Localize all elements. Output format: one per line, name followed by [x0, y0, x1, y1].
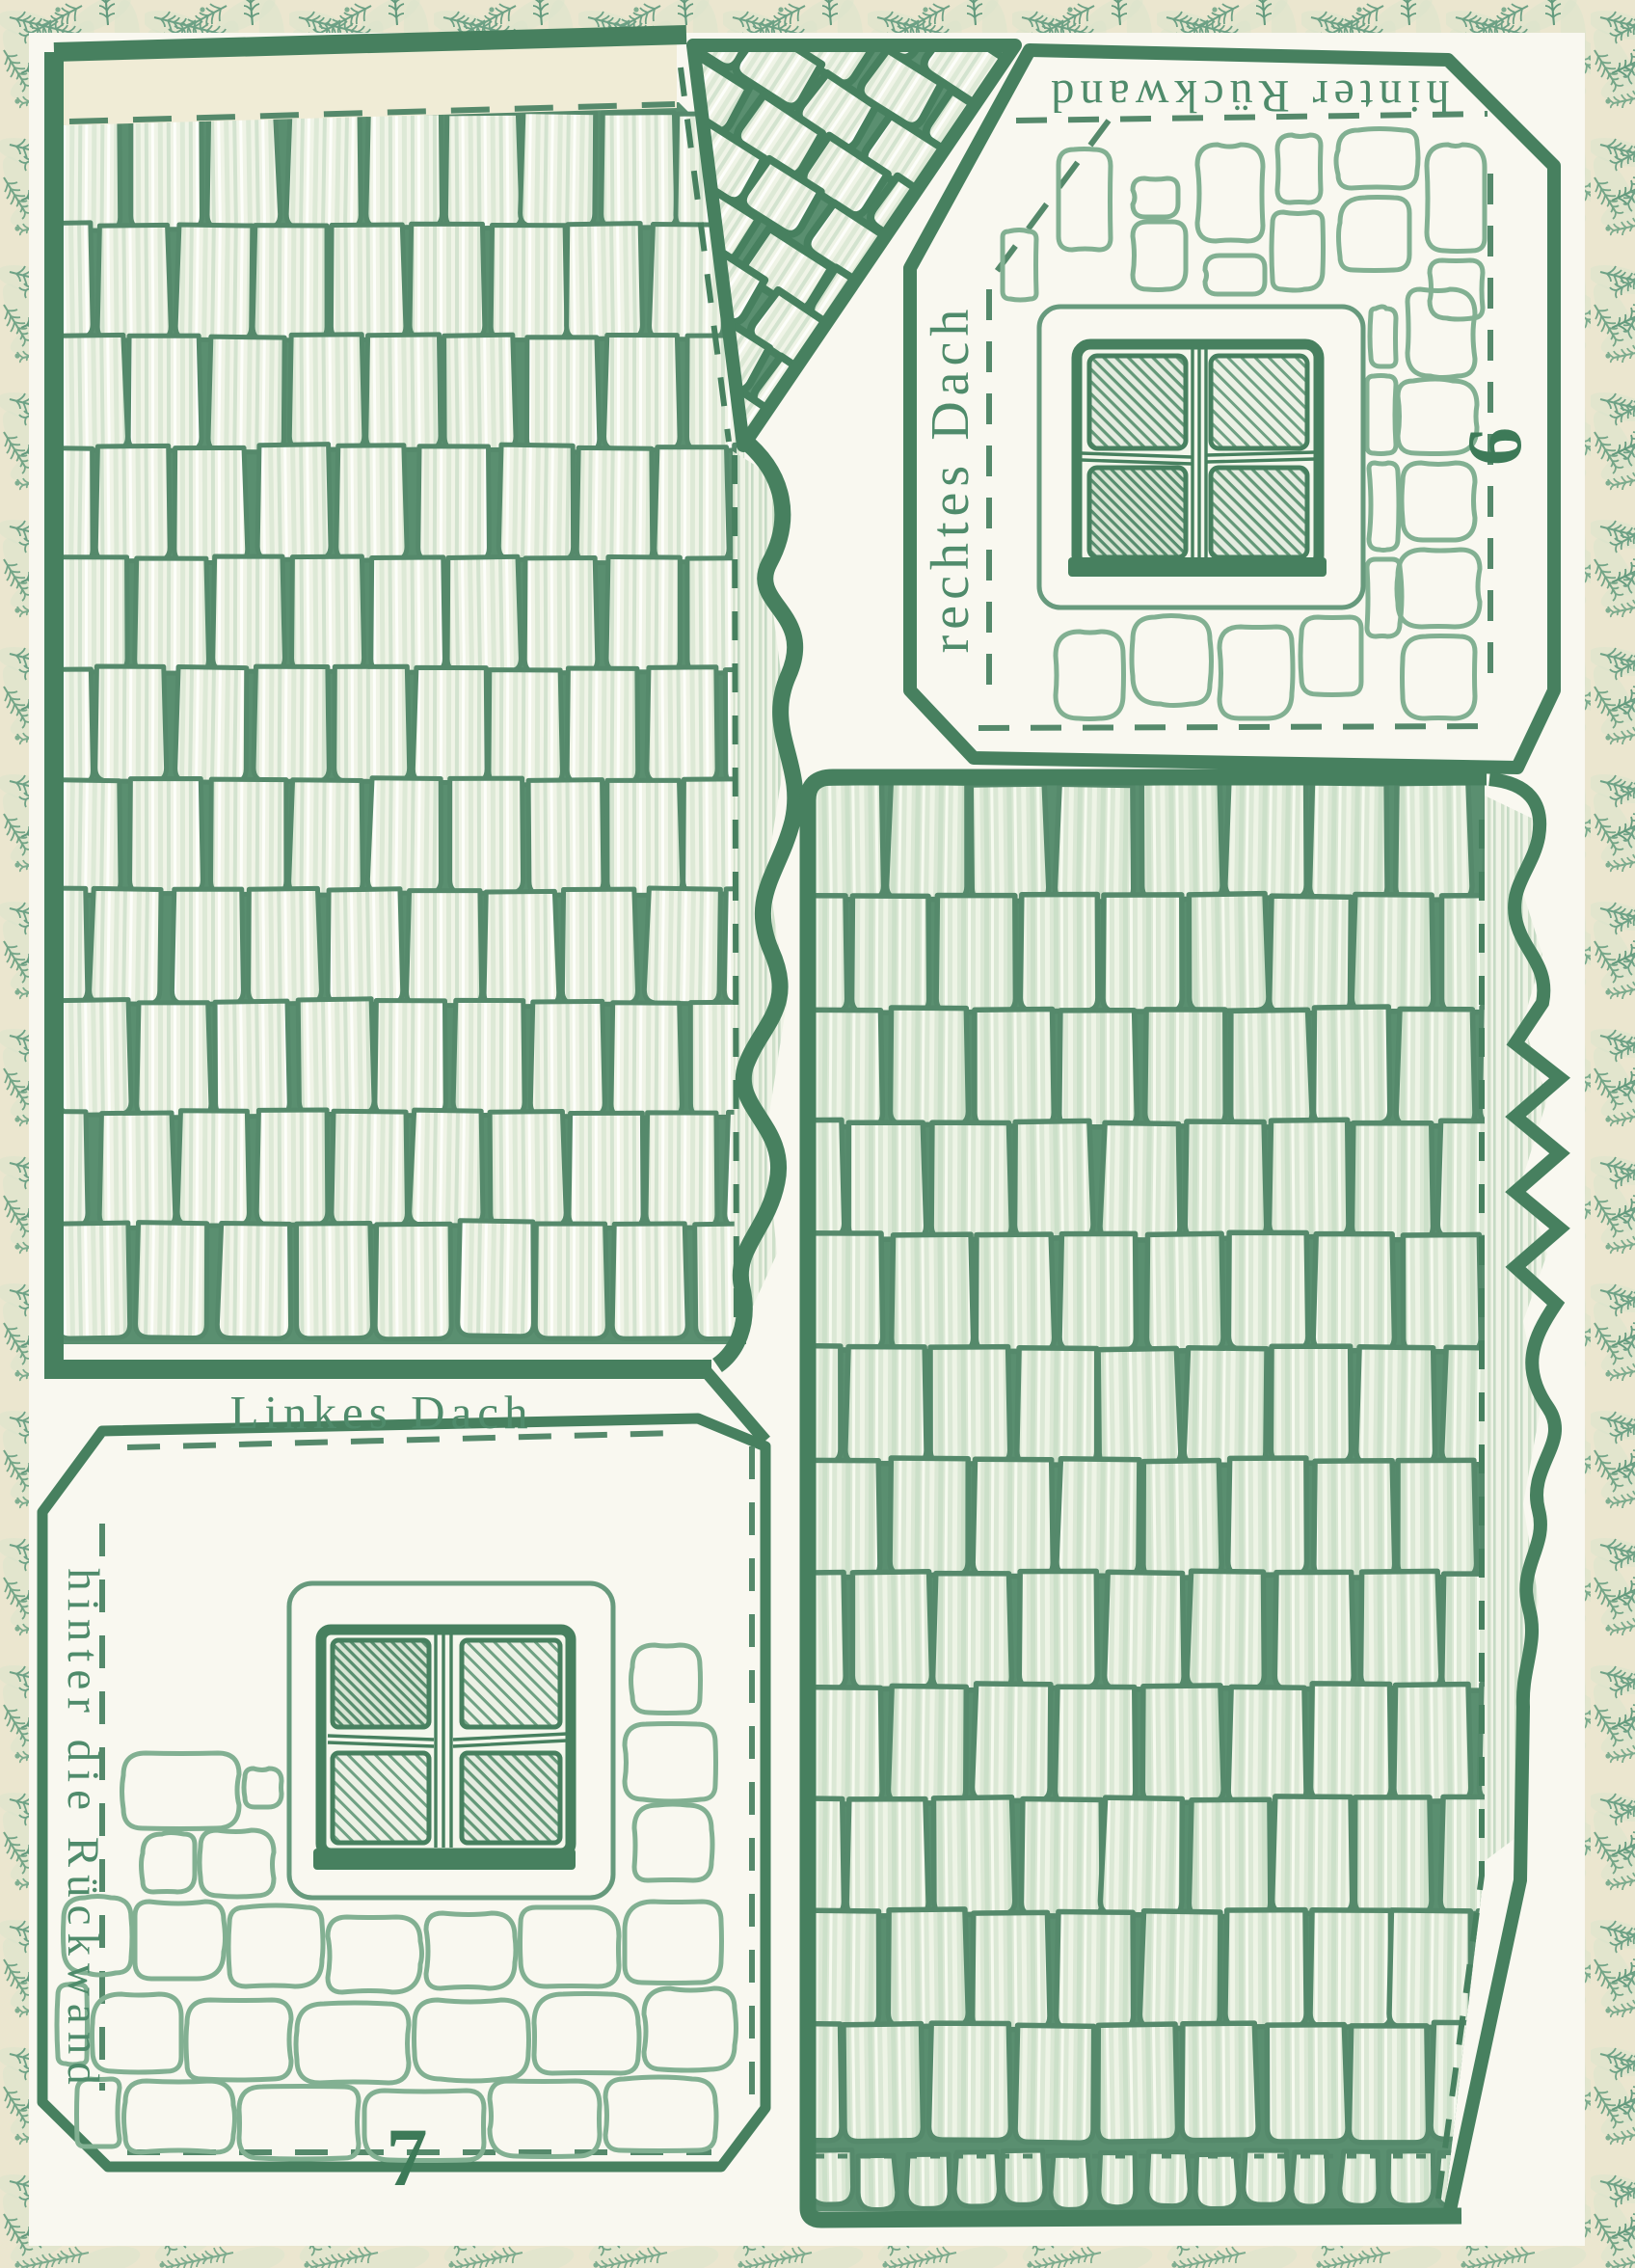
svg-text:7: 7	[387, 2111, 428, 2203]
svg-text:Linkes Dach: Linkes Dach	[230, 1386, 534, 1439]
svg-text:6: 6	[1453, 427, 1538, 466]
svg-text:rechtes Dach: rechtes Dach	[921, 304, 980, 654]
svg-text:hinter die Rückwand: hinter die Rückwand	[58, 1568, 108, 2092]
svg-text:hinter Rückwand: hinter Rückwand	[1045, 70, 1449, 121]
